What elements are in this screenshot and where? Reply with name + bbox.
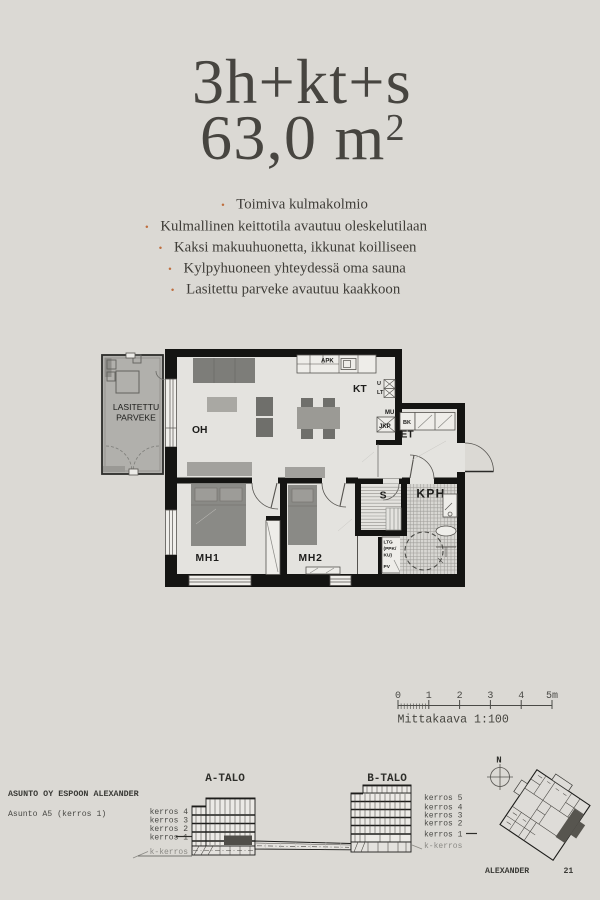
- svg-text:KT: KT: [353, 384, 367, 395]
- svg-text:kerros 2: kerros 2: [424, 820, 463, 829]
- svg-text:Mittakaava 1:100: Mittakaava 1:100: [398, 714, 509, 727]
- svg-text:S: S: [380, 491, 387, 502]
- svg-text:Asunto A5 (kerros 1): Asunto A5 (kerros 1): [8, 809, 106, 819]
- svg-text:• Kylpyhuoneen yhteydessä oma: • Kylpyhuoneen yhteydessä oma sauna: [168, 261, 406, 277]
- svg-text:BK: BK: [403, 420, 411, 426]
- svg-text:OH: OH: [192, 425, 207, 436]
- svg-text:• Kaksi makuuhuonetta, ikkunat: • Kaksi makuuhuonetta, ikkunat koillisee…: [159, 240, 417, 256]
- svg-text:• Toimiva kulmakolmio: • Toimiva kulmakolmio: [221, 197, 368, 213]
- svg-text:U: U: [377, 381, 381, 387]
- svg-text:• Lasitettu parveke avautuu ka: • Lasitettu parveke avautuu kaakkoon: [171, 282, 401, 298]
- svg-text:21: 21: [564, 867, 574, 876]
- svg-text:JKP: JKP: [379, 424, 391, 430]
- svg-text:kerros 1: kerros 1: [150, 834, 189, 843]
- svg-text:PV: PV: [384, 564, 391, 570]
- svg-text:PARVEKE: PARVEKE: [116, 413, 156, 423]
- svg-text:APK: APK: [321, 359, 334, 365]
- svg-text:kerros 1: kerros 1: [424, 831, 463, 840]
- svg-text:MH1: MH1: [196, 553, 220, 564]
- svg-text:LT: LT: [377, 390, 384, 396]
- svg-text:KPH: KPH: [416, 487, 445, 501]
- svg-text:LASITETTU: LASITETTU: [113, 402, 159, 412]
- svg-text:(PPK/: (PPK/: [384, 546, 397, 552]
- svg-text:ASUNTO OY ESPOON ALEXANDER: ASUNTO OY ESPOON ALEXANDER: [8, 789, 140, 799]
- svg-text:• Kulmallinen keittotila avaut: • Kulmallinen keittotila avautuu oleskel…: [145, 219, 428, 235]
- svg-text:B-TALO: B-TALO: [367, 773, 407, 785]
- svg-text:N: N: [496, 756, 501, 766]
- svg-text:A-TALO: A-TALO: [205, 773, 245, 785]
- svg-text:KU): KU): [384, 553, 393, 559]
- svg-text:kerros 5: kerros 5: [424, 794, 463, 803]
- svg-text:MU: MU: [385, 410, 394, 416]
- svg-text:k-kerros: k-kerros: [424, 842, 463, 851]
- svg-text:LTG: LTG: [384, 540, 394, 546]
- svg-text:63,0 m2: 63,0 m2: [200, 102, 406, 173]
- svg-text:ET: ET: [401, 430, 415, 441]
- svg-text:MH2: MH2: [299, 553, 323, 564]
- svg-text:ALEXANDER: ALEXANDER: [485, 867, 529, 876]
